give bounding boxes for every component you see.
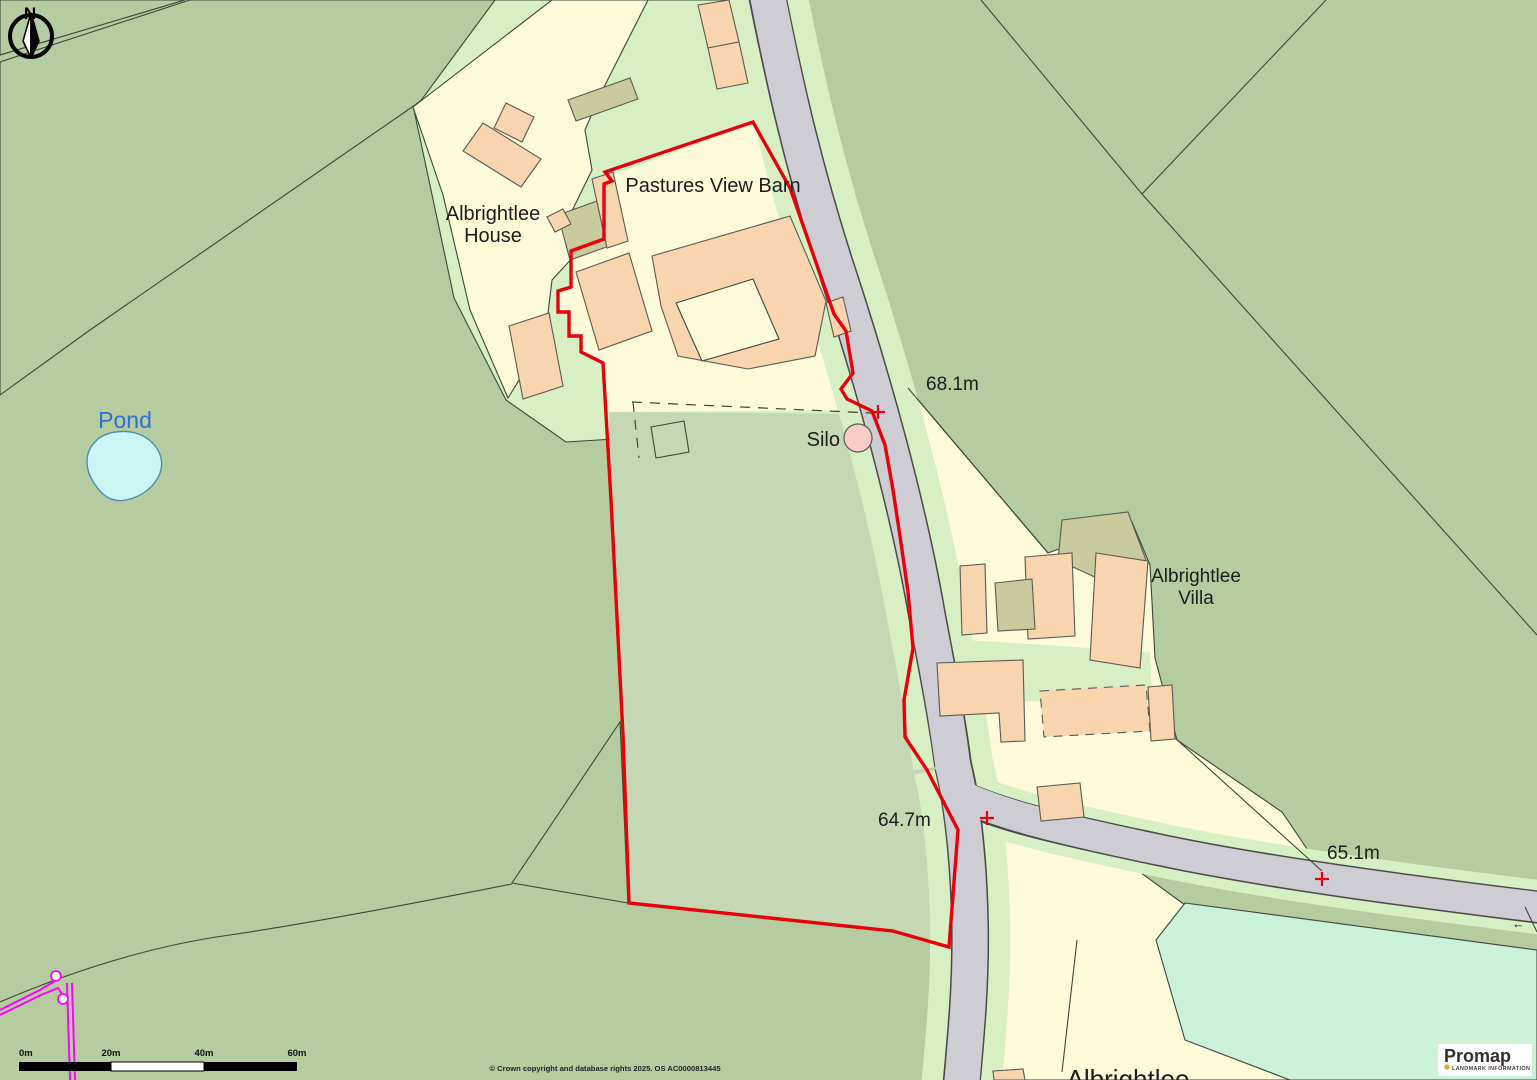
scale-tick-40: 40m [194, 1048, 213, 1059]
scale-tick-60: 60m [287, 1048, 306, 1059]
scale-segment-white [111, 1062, 204, 1071]
scale-tick-0: 0m [19, 1048, 33, 1059]
promap-logo-name: Promap [1444, 1046, 1511, 1066]
promap-logo: Promap LANDMARK INFORMATION [1438, 1044, 1532, 1076]
label-silo: Silo [807, 429, 840, 451]
label-height-65-1: 65.1m [1327, 843, 1380, 864]
promap-logo-dot-icon [1444, 1064, 1449, 1069]
building [960, 564, 987, 635]
label-albrightlee-house-1: Albrightlee [446, 203, 541, 225]
label-pastures-view-barn: Pastures View Barn [625, 175, 800, 197]
scale-segment-black [204, 1062, 297, 1071]
scale-tick-20: 20m [101, 1048, 120, 1059]
flow-arrow: ← [1512, 916, 1525, 931]
label-pond: Pond [98, 407, 152, 433]
map-canvas: Pastures View Barn Albrightlee House Alb… [0, 0, 1537, 1080]
label-albrightlee-partial: Albrightlee [1067, 1064, 1190, 1080]
building [1037, 783, 1084, 821]
building-dashed [1040, 685, 1150, 737]
utility-node [58, 994, 68, 1004]
label-albrightlee-villa-2: Villa [1178, 588, 1214, 609]
copyright-text: © Crown copyright and database rights 20… [489, 1064, 721, 1073]
building [1148, 685, 1175, 741]
silo-circle [844, 424, 872, 452]
building [995, 579, 1035, 631]
label-height-64-7: 64.7m [878, 810, 931, 831]
utility-node [51, 971, 61, 981]
promap-logo-subtitle: LANDMARK INFORMATION [1452, 1066, 1530, 1072]
map-viewport: Pastures View Barn Albrightlee House Alb… [0, 0, 1537, 1080]
scale-segment-black [19, 1062, 111, 1071]
building [993, 1069, 1025, 1080]
label-albrightlee-villa-1: Albrightlee [1151, 566, 1241, 587]
building [1090, 553, 1148, 668]
label-height-68-1: 68.1m [926, 374, 979, 395]
label-albrightlee-house-2: House [464, 225, 522, 247]
